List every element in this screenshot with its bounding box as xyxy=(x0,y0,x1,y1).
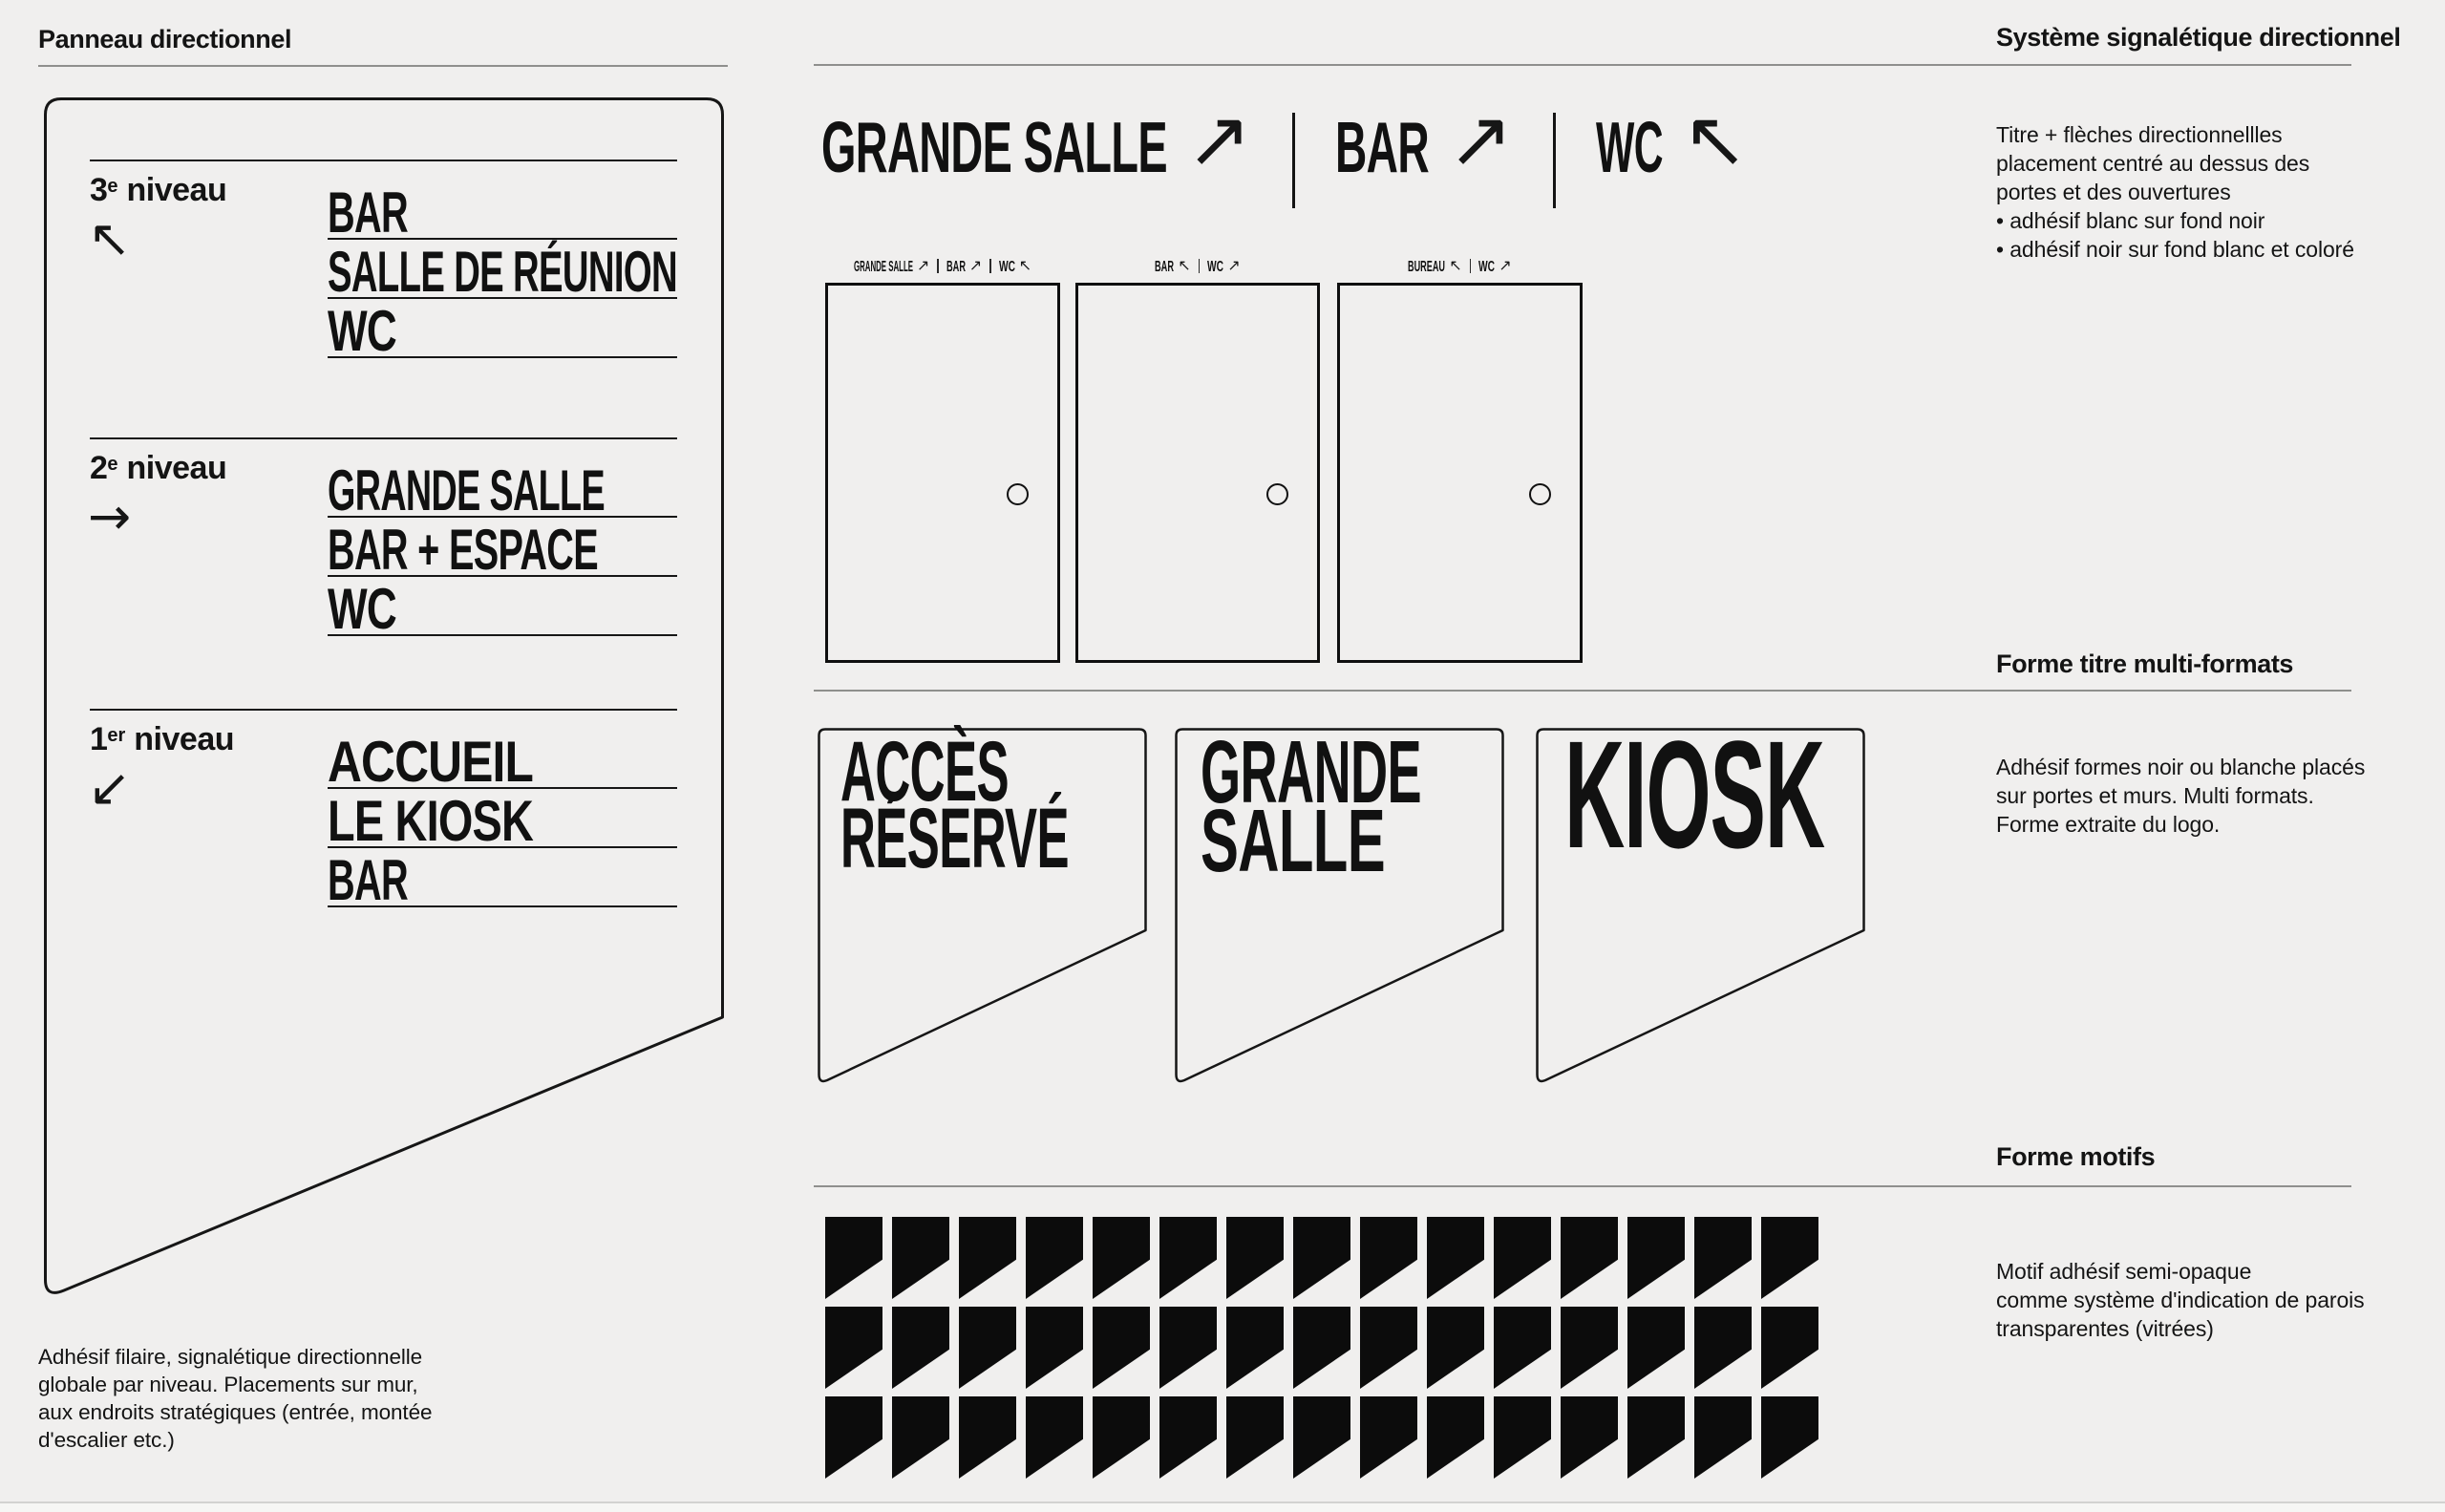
level-ordinal: e xyxy=(107,454,117,475)
door-label-text: BAR xyxy=(1155,259,1174,275)
shaped-sign-acces-reserve: ACCÈS RÉSERVÉ xyxy=(818,728,1147,1088)
motif-shape xyxy=(1561,1217,1618,1299)
body-line: sur portes et murs. Multi formats. xyxy=(1996,781,2365,810)
level-label: 2e niveau xyxy=(90,450,226,487)
motif-shape xyxy=(1293,1396,1350,1479)
right-section-heading-1: Système signalétique directionnel xyxy=(1996,23,2400,53)
body-line: transparentes (vitrées) xyxy=(1996,1314,2365,1343)
motif-shape xyxy=(1627,1217,1685,1299)
motif-shape xyxy=(1026,1217,1083,1299)
destination-label: WC xyxy=(328,577,396,641)
motif-shape xyxy=(1159,1217,1217,1299)
caption-line: d'escalier etc.) xyxy=(38,1426,432,1454)
title-text: GRANDE SALLE xyxy=(821,107,1167,187)
door-mockup xyxy=(1337,283,1583,663)
destination-row: BAR + ESPACE xyxy=(328,525,677,577)
level-word: niveau xyxy=(134,721,234,757)
sign-text: RÉSERVÉ xyxy=(840,790,1069,885)
motif-shape xyxy=(1159,1307,1217,1389)
right-section-heading-2: Forme titre multi-formats xyxy=(1996,650,2293,679)
motif-shape xyxy=(1093,1396,1150,1479)
destination-row: WC xyxy=(328,585,677,636)
body-line: Forme extraite du logo. xyxy=(1996,810,2365,839)
door-label-divider xyxy=(1470,259,1472,273)
door-label-text: GRANDE SALLE xyxy=(854,259,913,275)
panel-caption: Adhésif filaire, signalétique directionn… xyxy=(38,1343,432,1454)
shaped-sign-kiosk: KIOSK xyxy=(1536,728,1865,1088)
arrow-up-right-icon: ↗ xyxy=(1186,101,1252,187)
motif-pattern-grid xyxy=(825,1217,1818,1479)
motif-shape xyxy=(1627,1396,1685,1479)
motif-shape xyxy=(1226,1307,1284,1389)
body-line: Adhésif formes noir ou blanche placés xyxy=(1996,753,2365,781)
door-sign-label: BAR ↖ WC ↗ xyxy=(1075,256,1320,273)
body-line: • adhésif blanc sur fond noir xyxy=(1996,206,2354,235)
motif-shape xyxy=(892,1217,949,1299)
destination-label: BAR xyxy=(328,848,408,912)
arrow-up-right-icon: ↗ xyxy=(1448,101,1514,187)
motif-shape xyxy=(1494,1307,1551,1389)
level-label: 3e niveau xyxy=(90,172,226,209)
motif-shape xyxy=(1226,1217,1284,1299)
title-divider xyxy=(1553,113,1556,208)
motif-shape xyxy=(825,1396,882,1479)
right-section-heading-3: Forme motifs xyxy=(1996,1142,2155,1172)
level-label: 1er niveau xyxy=(90,721,234,758)
right-section-body-1: Titre + flèches directionnellles placeme… xyxy=(1996,120,2354,264)
sign-text-line: RÉSERVÉ xyxy=(840,806,1089,873)
level-direction-arrow: → xyxy=(88,490,131,543)
level-group-rule xyxy=(90,160,677,161)
arrow-up-right-icon: ↗ xyxy=(1227,258,1240,273)
sign-text-line: SALLE xyxy=(1201,808,1439,877)
level-ordinal: er xyxy=(107,725,125,746)
destination-label: BAR + ESPACE xyxy=(328,518,598,582)
motif-shape xyxy=(1093,1217,1150,1299)
sign-text-line: KIOSK xyxy=(1564,737,1837,854)
motif-shape xyxy=(1226,1396,1284,1479)
destination-label: GRANDE SALLE xyxy=(328,458,605,522)
destination-row: BAR xyxy=(328,856,677,907)
right-section-body-3: Motif adhésif semi-opaque comme système … xyxy=(1996,1257,2365,1343)
section-rule-top xyxy=(814,64,2351,66)
motif-shape xyxy=(1026,1396,1083,1479)
motif-shape xyxy=(1694,1217,1752,1299)
motif-shape xyxy=(1494,1217,1551,1299)
door-mockup xyxy=(825,283,1060,663)
door-label-divider xyxy=(1199,259,1201,273)
destination-label: SALLE DE RÉUNION xyxy=(328,240,677,304)
arrow-up-left-icon: ↖ xyxy=(1682,101,1748,187)
motif-shape xyxy=(1360,1396,1417,1479)
arrow-up-right-icon: ↗ xyxy=(1499,258,1511,273)
motif-shape xyxy=(1293,1217,1350,1299)
caption-line: globale par niveau. Placements sur mur, xyxy=(38,1371,432,1398)
motif-shape xyxy=(825,1217,882,1299)
arrow-up-left-icon: ↖ xyxy=(1019,258,1031,273)
right-section-body-2: Adhésif formes noir ou blanche placés su… xyxy=(1996,753,2365,839)
door-label-text: BUREAU xyxy=(1408,259,1445,275)
destination-label: WC xyxy=(328,299,396,363)
door-label-text: WC xyxy=(1207,259,1223,275)
motif-shape xyxy=(1761,1217,1818,1299)
level-group-rule xyxy=(90,709,677,711)
motif-shape xyxy=(1694,1307,1752,1389)
sign-text: KIOSK xyxy=(1564,709,1825,880)
destination-label: LE KIOSK xyxy=(328,789,534,853)
motif-shape xyxy=(1159,1396,1217,1479)
page-bottom-strip xyxy=(0,1503,2445,1512)
body-line: Titre + flèches directionnellles xyxy=(1996,120,2354,149)
shaped-sign-grande-salle: GRANDE SALLE xyxy=(1175,728,1504,1088)
destination-list: ACCUEIL LE KIOSK BAR xyxy=(328,737,677,915)
motif-shape xyxy=(1561,1307,1618,1389)
body-line: portes et des ouvertures xyxy=(1996,178,2354,206)
sign-text: SALLE xyxy=(1201,791,1385,890)
title-text: BAR xyxy=(1335,107,1429,187)
level-ordinal: e xyxy=(107,176,117,197)
title-text: WC xyxy=(1596,107,1663,187)
level-direction-arrow: ↙ xyxy=(88,761,131,815)
destination-row: WC xyxy=(328,307,677,358)
motif-shape xyxy=(1761,1307,1818,1389)
title-item: WC xyxy=(1596,111,1663,187)
motif-shape xyxy=(892,1307,949,1389)
motif-shape xyxy=(959,1307,1016,1389)
destination-row: ACCUEIL xyxy=(328,737,677,789)
motif-shape xyxy=(1427,1396,1484,1479)
destination-row: LE KIOSK xyxy=(328,797,677,848)
arrow-up-right-icon: ↗ xyxy=(969,258,982,273)
motif-shape xyxy=(1627,1307,1685,1389)
motif-shape xyxy=(959,1217,1016,1299)
motif-shape xyxy=(1093,1307,1150,1389)
door-label-text: WC xyxy=(999,259,1015,275)
destination-row: BAR xyxy=(328,188,677,240)
level-group-rule xyxy=(90,437,677,439)
motif-shape xyxy=(1427,1307,1484,1389)
level-word: niveau xyxy=(127,450,227,486)
motif-shape xyxy=(825,1307,882,1389)
destination-row: GRANDE SALLE xyxy=(328,466,677,518)
arrow-up-left-icon: ↖ xyxy=(1178,258,1190,273)
motif-shape xyxy=(1494,1396,1551,1479)
destination-label: BAR xyxy=(328,181,408,245)
left-section-heading: Panneau directionnel xyxy=(38,25,291,54)
arrow-up-right-icon: ↗ xyxy=(917,258,929,273)
door-knob xyxy=(1007,483,1029,505)
door-mockup xyxy=(1075,283,1320,663)
body-line: • adhésif noir sur fond blanc et coloré xyxy=(1996,235,2354,264)
door-sign-label: BUREAU ↖ WC ↗ xyxy=(1337,256,1583,273)
door-label-divider xyxy=(937,259,939,273)
left-heading-rule xyxy=(38,65,728,67)
caption-line: aux endroits stratégiques (entrée, monté… xyxy=(38,1398,432,1426)
motif-shape xyxy=(1360,1307,1417,1389)
motif-shape xyxy=(892,1396,949,1479)
section-rule-bottom xyxy=(814,1185,2351,1187)
directional-title: GRANDE SALLE ↗ BAR ↗ WC ↖ xyxy=(821,111,1748,187)
door-sign-label: GRANDE SALLE ↗ BAR ↗ WC ↖ xyxy=(825,256,1060,273)
door-label-text: BAR xyxy=(946,259,966,275)
destination-label: ACCUEIL xyxy=(328,730,533,794)
title-divider xyxy=(1292,113,1295,208)
destination-list: BAR SALLE DE RÉUNION WC xyxy=(328,188,677,366)
motif-shape xyxy=(1026,1307,1083,1389)
level-number: 1 xyxy=(90,721,107,757)
motif-shape xyxy=(1561,1396,1618,1479)
arrow-up-left-icon: ↖ xyxy=(1449,258,1461,273)
title-item: BAR xyxy=(1335,111,1429,187)
destination-list: GRANDE SALLE BAR + ESPACE WC xyxy=(328,466,677,644)
signage-guideline-page: Panneau directionnel 3e niveau ↖ BAR SAL… xyxy=(0,0,2445,1512)
door-knob xyxy=(1266,483,1288,505)
motif-shape xyxy=(1293,1307,1350,1389)
door-knob xyxy=(1529,483,1551,505)
body-line: Motif adhésif semi-opaque xyxy=(1996,1257,2365,1286)
body-line: placement centré au dessus des xyxy=(1996,149,2354,178)
body-line: comme système d'indication de parois xyxy=(1996,1286,2365,1314)
motif-shape xyxy=(1694,1396,1752,1479)
level-number: 2 xyxy=(90,450,107,486)
level-number: 3 xyxy=(90,172,107,208)
door-label-divider xyxy=(989,259,991,273)
title-item: GRANDE SALLE xyxy=(821,111,1167,187)
motif-shape xyxy=(1360,1217,1417,1299)
level-word: niveau xyxy=(127,172,227,208)
section-rule-middle xyxy=(814,690,2351,692)
caption-line: Adhésif filaire, signalétique directionn… xyxy=(38,1343,432,1371)
door-label-text: WC xyxy=(1478,259,1495,275)
destination-row: SALLE DE RÉUNION xyxy=(328,247,677,299)
motif-shape xyxy=(959,1396,1016,1479)
level-direction-arrow: ↖ xyxy=(88,212,131,266)
motif-shape xyxy=(1761,1396,1818,1479)
motif-shape xyxy=(1427,1217,1484,1299)
